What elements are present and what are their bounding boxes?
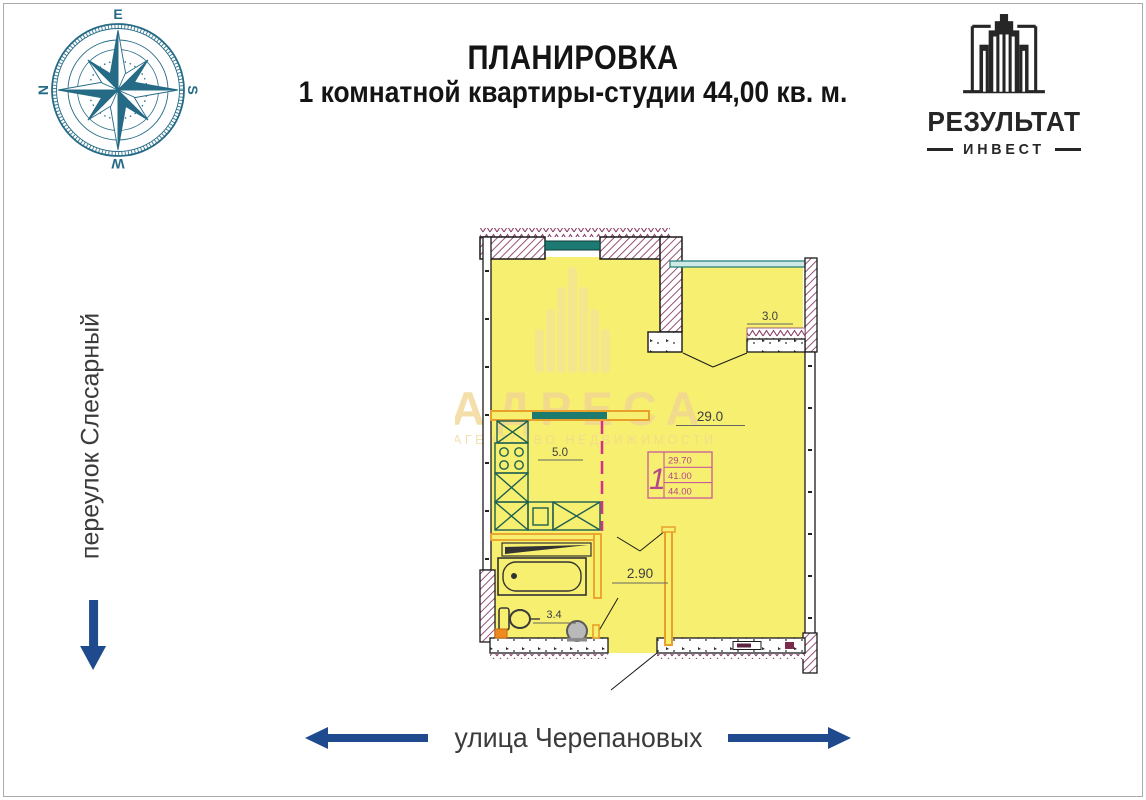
stamp-row-apartment: 41.00 bbox=[668, 471, 692, 482]
arrow-down-icon bbox=[80, 600, 106, 670]
arrow-right-icon bbox=[728, 727, 851, 749]
logo-subname-row: ИНВЕСТ bbox=[898, 141, 1110, 158]
loggia-area-label: 3.0 bbox=[762, 311, 778, 323]
arrow-left-icon bbox=[305, 727, 428, 749]
stamp-row-living: 29.70 bbox=[668, 456, 692, 467]
watermark-subtitle: АГЕНТСТВО НЕДВИЖИМОСТИ bbox=[455, 433, 717, 447]
washing-machine bbox=[567, 621, 587, 642]
utility-box bbox=[495, 629, 507, 638]
company-logo: РЕЗУЛЬТАТ ИНВЕСТ bbox=[898, 14, 1110, 158]
hallway-area-label: 2.90 bbox=[627, 566, 653, 581]
title-line2: 1 комнатной квартиры-студии 44,00 кв. м. bbox=[221, 76, 925, 110]
building-icon bbox=[958, 14, 1050, 104]
bathroom-area-label: 3.4 bbox=[546, 609, 561, 621]
stamp-apartment-number: 1 bbox=[649, 463, 666, 496]
floor-plan: АДРЕСА АГЕНТСТВО НЕДВИЖИМОСТИ bbox=[455, 225, 835, 695]
title-line1: ПЛАНИРОВКА bbox=[229, 40, 917, 76]
page-title: ПЛАНИРОВКА 1 комнатной квартиры-студии 4… bbox=[173, 40, 973, 110]
living-room-area-label: 29.0 bbox=[697, 409, 723, 424]
stamp-row-total: 44.00 bbox=[668, 486, 692, 497]
compass-letter-top: E bbox=[113, 6, 122, 22]
loggia-glazing bbox=[670, 261, 805, 267]
window-top bbox=[545, 241, 600, 250]
kitchen-area-label: 5.0 bbox=[552, 447, 568, 459]
watermark-title: АДРЕСА bbox=[455, 382, 710, 435]
door-jamb bbox=[593, 625, 599, 638]
entrance-door-swing bbox=[611, 653, 657, 690]
street-bottom: улица Черепановых bbox=[320, 722, 836, 754]
kitchen-counter-green bbox=[532, 412, 607, 419]
compass-letter-bottom: W bbox=[111, 156, 125, 172]
logo-name: РЕЗУЛЬТАТ bbox=[904, 106, 1103, 138]
logo-dash-right bbox=[1055, 148, 1081, 151]
street-left-label: переулок Слесарный bbox=[77, 313, 106, 559]
street-bottom-label: улица Черепановых bbox=[454, 722, 702, 754]
logo-subname: ИНВЕСТ bbox=[963, 141, 1045, 158]
logo-dash-left bbox=[927, 148, 953, 151]
compass-letter-left: N bbox=[36, 85, 51, 95]
street-left: переулок Слесарный bbox=[55, 268, 127, 680]
